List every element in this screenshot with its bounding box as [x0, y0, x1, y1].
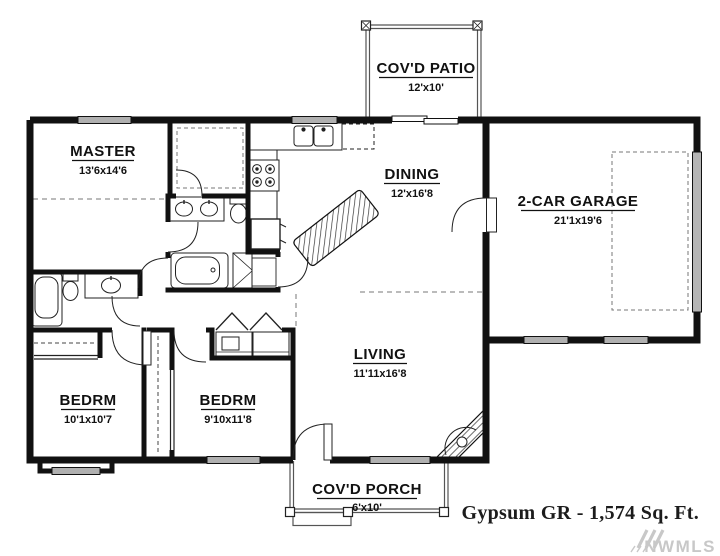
bedroom1-window	[52, 468, 100, 475]
corner-fireplace	[434, 408, 486, 460]
double-vanity	[170, 197, 224, 221]
bed2-closet-bypass-doors	[171, 370, 175, 450]
toilet-tank	[63, 274, 78, 281]
room-label-bedroom2: BEDRM	[200, 392, 257, 409]
room-dims-garage: 21'1x19'6	[554, 215, 602, 227]
floor-plan-svg: MASTER 13'6x14'6 COV'D PATIO 12'x10' DIN…	[0, 0, 720, 556]
laundry-bifold-doors	[216, 313, 282, 330]
room-label-bedroom1: BEDRM	[60, 392, 117, 409]
garage-entry-door-leaf	[487, 198, 497, 232]
range-stove	[248, 160, 279, 191]
room-label-living: LIVING	[354, 346, 406, 363]
porch-step	[293, 513, 351, 526]
kitchen-island	[292, 189, 379, 267]
room-dims-living: 11'11x16'8	[354, 368, 407, 380]
bedroom1-door-leaf	[143, 331, 151, 365]
kitchen-faucet	[322, 128, 325, 131]
master-bath-door-swing	[168, 222, 198, 252]
porch-post	[286, 508, 295, 517]
floor-plan-page: MASTER 13'6x14'6 COV'D PATIO 12'x10' DIN…	[0, 0, 720, 556]
room-dims-dining: 12'x16'8	[391, 188, 433, 200]
master-window	[78, 117, 131, 124]
walkin-closet-shelf-line	[177, 128, 243, 188]
master-bath-fixtures	[170, 197, 252, 288]
plan-title: Gypsum GR - 1,574 Sq. Ft.	[461, 502, 699, 524]
garage-front-window	[524, 337, 568, 344]
garage-door-track-outline	[612, 152, 688, 310]
refrigerator	[251, 219, 280, 249]
bed1-closet-bypass-doors	[34, 356, 98, 360]
kitchen-upper-cabinet	[342, 124, 374, 149]
toilet-bowl	[63, 282, 78, 301]
room-label-covd-patio: COV'D PATIO	[376, 60, 475, 77]
porch-post	[344, 508, 353, 517]
linen-closet	[233, 253, 252, 288]
kitchen-fixtures	[248, 123, 380, 286]
bedroom2-door-swing	[174, 330, 206, 362]
hall-bath-fixtures	[31, 273, 138, 326]
room-dims-covd-patio: 12'x10'	[408, 82, 444, 94]
garage-front-window	[604, 337, 648, 344]
room-label-garage: 2-CAR GARAGE	[518, 193, 639, 210]
room-label-dining: DINING	[385, 166, 440, 183]
garage-overhead-door	[693, 152, 702, 312]
room-dims-bedroom2: 9'10x11'8	[204, 414, 251, 426]
laundry-fixtures	[216, 332, 289, 356]
walkin-closet-door-swing	[176, 170, 202, 196]
refrigerator-handles	[280, 224, 286, 243]
bedroom2-window	[207, 457, 260, 464]
room-dims-master: 13'6x14'6	[79, 165, 127, 177]
front-door-leaf	[324, 424, 332, 460]
garage-entry-door-swing	[452, 198, 486, 232]
nwmls-watermark: NWMLS	[631, 530, 716, 556]
watermark-label: NWMLS	[644, 537, 716, 556]
pantry-shelf	[252, 258, 276, 286]
kitchen-faucet	[302, 128, 305, 131]
room-dims-covd-porch: 6'x10'	[352, 502, 382, 514]
toilet-bowl	[231, 204, 247, 223]
kitchen-window	[292, 117, 337, 124]
room-label-covd-porch: COV'D PORCH	[312, 481, 422, 498]
room-label-master: MASTER	[70, 143, 136, 160]
porch-post	[440, 508, 449, 517]
living-window	[370, 457, 430, 464]
room-dims-bedroom1: 10'1x10'7	[64, 414, 112, 426]
patio-slider-door	[392, 116, 458, 124]
hall-vestibule-door-swing	[278, 257, 308, 287]
hall-bath-door-swing	[112, 296, 140, 326]
windows	[52, 117, 702, 475]
